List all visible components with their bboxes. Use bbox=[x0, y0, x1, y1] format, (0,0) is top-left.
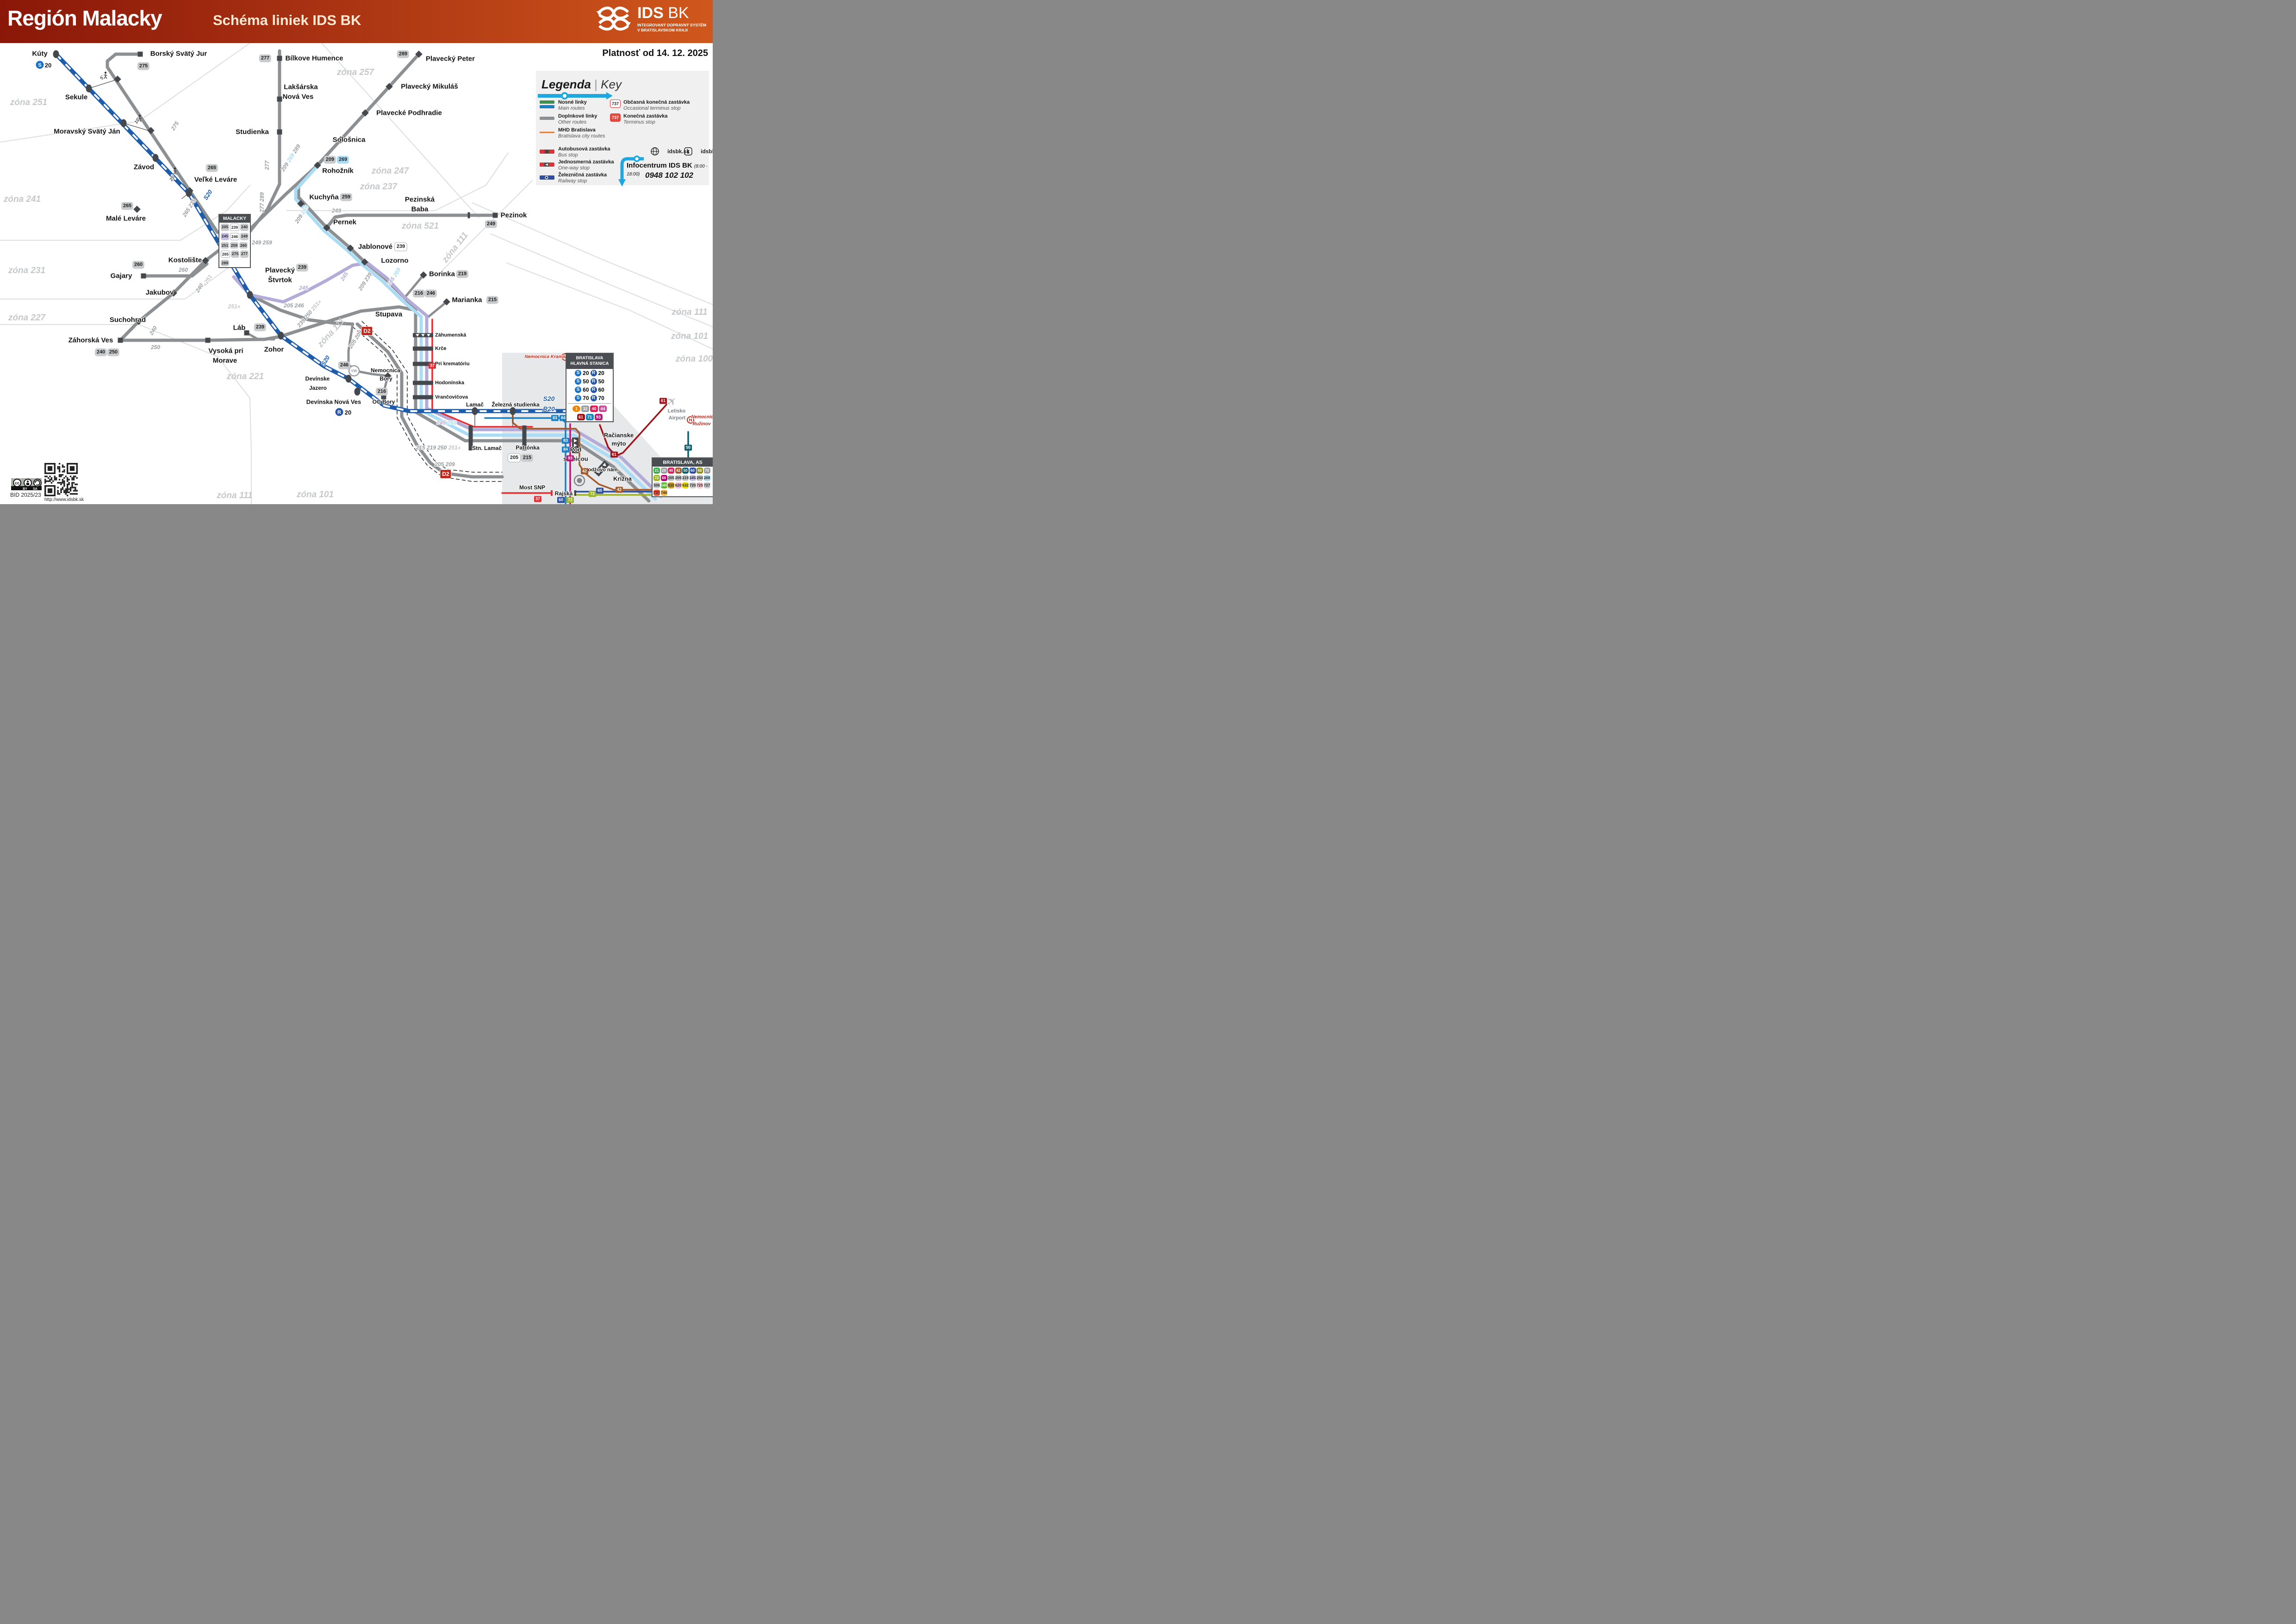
svg-text:f: f bbox=[687, 149, 690, 155]
station-label: Gajary bbox=[111, 272, 132, 280]
footer-url: http://www.idsbk.sk bbox=[44, 497, 84, 502]
route-badge: 84 bbox=[562, 447, 569, 453]
route-badge: 205 bbox=[668, 475, 674, 481]
zone-label: zóna 237 bbox=[360, 182, 397, 192]
route-badge: 265 bbox=[121, 202, 133, 210]
route-badge: 68 bbox=[697, 468, 703, 474]
station-label: Pezinok bbox=[501, 212, 527, 219]
route-badge: 70 bbox=[704, 468, 710, 474]
route-badge: 42 bbox=[675, 468, 682, 474]
legend-box: Legenda | Key Nosné linkyMain routesDopl… bbox=[536, 71, 709, 185]
route-badge: 72 bbox=[566, 497, 574, 503]
station-label: OC Bory bbox=[373, 399, 395, 405]
route-badge: 72 bbox=[653, 475, 660, 481]
terminus-badge-icon: 737 bbox=[610, 113, 621, 122]
route-badge: 216 bbox=[376, 388, 388, 396]
zone-label: zóna 111 bbox=[672, 307, 707, 318]
station-label: Pezinská bbox=[405, 196, 435, 204]
station-label: Patrónka bbox=[516, 444, 539, 451]
transit-map-poster: ✈HHVWSR zóna 251zóna 241zóna 231zóna 227… bbox=[0, 0, 713, 504]
route-badge: 205 bbox=[221, 224, 229, 231]
station-label: Pernek bbox=[333, 219, 356, 226]
mhd-icon bbox=[540, 127, 555, 137]
route-number-label: 277 bbox=[264, 161, 270, 170]
infocenter-phone: 0948 102 102 bbox=[645, 171, 693, 180]
route-badge: 289 bbox=[221, 260, 229, 266]
route-badge: 219 bbox=[682, 475, 689, 481]
route-badge: 260 bbox=[132, 261, 144, 269]
route-badge: 50 bbox=[682, 468, 689, 474]
route-number-label: 209 269 bbox=[293, 204, 310, 225]
route-badge: 239 bbox=[254, 324, 266, 331]
station-label: Plavecký Mikuláš bbox=[401, 83, 458, 91]
page-title: Región Malacky bbox=[7, 6, 162, 31]
station-label: Marianka bbox=[452, 296, 482, 304]
station-label: Láb bbox=[233, 324, 246, 332]
station-label: Vysoká pri bbox=[208, 347, 243, 355]
page-subtitle: Schéma liniek IDS BK bbox=[213, 12, 361, 29]
route-badge: 61 bbox=[577, 414, 585, 420]
idsbk-logo: IDS BK INTEGROVANÝ DOPRAVNÝ SYSTÉMV BRAT… bbox=[596, 5, 706, 33]
zone-label: zóna 101 bbox=[671, 331, 708, 342]
station-label: Stupava bbox=[375, 311, 402, 319]
zone-label: zóna 231 bbox=[8, 266, 45, 276]
legend-title: Legenda | Key bbox=[541, 77, 622, 92]
station-label: Nemocnica bbox=[371, 367, 400, 374]
station-label: Plavecké Podhradie bbox=[376, 109, 442, 117]
route-badge: 83 bbox=[551, 415, 559, 421]
route-badge: 209 bbox=[675, 475, 682, 481]
route-badge: 61 bbox=[660, 398, 667, 404]
legend-link-facebook: fidsbk.sk bbox=[683, 146, 713, 156]
route-number-label: 209 239 bbox=[357, 271, 373, 292]
route-badge: 277 bbox=[259, 55, 271, 62]
route-badge: 250 bbox=[697, 475, 703, 481]
station-label: Záhumenská bbox=[435, 332, 466, 338]
station-label: Stn. Lamač bbox=[472, 445, 502, 451]
rail-line-letter-icon: R bbox=[591, 387, 597, 393]
route-badge: D2 bbox=[361, 326, 373, 336]
station-label: Pri krematóriu bbox=[435, 361, 470, 367]
zone-label: zóna 257 bbox=[337, 68, 374, 78]
logo-name: IDS BK bbox=[637, 5, 706, 21]
route-number-label: «251 bbox=[201, 274, 213, 287]
station-label: Most SNP bbox=[519, 484, 545, 491]
zone-label: zóna 111 bbox=[440, 231, 470, 265]
station-label: Krče bbox=[435, 346, 446, 351]
route-badge: 269 bbox=[337, 156, 349, 164]
station-label: Kúty bbox=[32, 50, 47, 58]
route-badge: 620 bbox=[675, 482, 682, 488]
station-label: Rohožník bbox=[322, 167, 354, 175]
route-badge: 289 bbox=[397, 50, 409, 58]
route-badge: 239 bbox=[296, 264, 308, 272]
route-badge: 240 bbox=[240, 224, 249, 231]
station-label: Malé Leváre bbox=[106, 215, 146, 223]
route-badge: 265 bbox=[221, 250, 230, 258]
zone-label: zóna 100 bbox=[676, 354, 713, 364]
other-icon bbox=[540, 113, 555, 124]
terminal-box-title: MALACKY bbox=[219, 215, 250, 223]
route-badge: 216 bbox=[413, 290, 425, 298]
malacky-terminal-box: MALACKY205239240245246249251259260265275… bbox=[218, 214, 251, 268]
rail-line-letter-icon: R bbox=[591, 395, 597, 401]
rail-line-row: S70R70 bbox=[566, 394, 613, 402]
bratislava-as-box: BRATISLAVA, AS21254042506068707288205209… bbox=[652, 457, 713, 497]
station-label: 20 bbox=[345, 409, 351, 416]
station-label: Železná studienka bbox=[492, 401, 539, 408]
station-label: Závod bbox=[134, 163, 154, 171]
route-number-label: 245 bbox=[299, 285, 308, 291]
station-label: Lakšárska bbox=[284, 83, 317, 91]
route-badge: 60 bbox=[596, 488, 604, 494]
route-badge: 25 bbox=[661, 468, 667, 474]
route-number-label: 249 bbox=[332, 207, 341, 214]
route-badge: 249 bbox=[485, 220, 497, 228]
station-label: Studienka bbox=[236, 128, 269, 136]
route-badge: 93 bbox=[595, 414, 603, 420]
main-icon bbox=[540, 100, 555, 110]
station-label: 20 bbox=[45, 62, 51, 69]
route-badge: 88 bbox=[661, 475, 667, 481]
station-label: Nemocnica Kramáre bbox=[525, 355, 570, 360]
route-number-label: 245 269 bbox=[436, 419, 456, 426]
station-label: Nemocnica bbox=[691, 415, 713, 420]
route-badge: 1 bbox=[572, 406, 580, 412]
route-badge: 249 bbox=[240, 233, 249, 240]
route-badge: 83 bbox=[562, 438, 569, 444]
station-label: mýto bbox=[611, 440, 626, 447]
terminus-badge-icon: 737 bbox=[610, 100, 621, 108]
route-badge: 245 bbox=[690, 475, 696, 481]
route-badge: 240 bbox=[95, 349, 107, 356]
station-label: Lamač bbox=[466, 401, 484, 408]
route-number-label: S20 bbox=[543, 395, 555, 402]
rail-icon bbox=[540, 172, 555, 182]
station-label: Jakubov bbox=[146, 289, 174, 297]
route-badge: 727 bbox=[704, 482, 710, 488]
route-badge: 720 bbox=[690, 482, 696, 488]
route-number-label: 25' bbox=[169, 174, 177, 182]
zone-label: zóna 221 bbox=[227, 372, 264, 382]
station-label: Kostolište bbox=[168, 256, 202, 264]
qr-code bbox=[44, 463, 78, 496]
facebook-icon: f bbox=[683, 146, 699, 156]
route-badge: 259 bbox=[340, 194, 352, 201]
route-badge: 259 bbox=[230, 242, 238, 249]
zone-label: zóna 251 bbox=[10, 98, 47, 108]
route-badge: 610 bbox=[668, 482, 674, 488]
station-label: Kuchyňa bbox=[309, 194, 338, 201]
route-number-label: S20 bbox=[202, 188, 213, 201]
route-badge: 72 bbox=[589, 491, 596, 497]
rail-line-letter-icon: R bbox=[591, 370, 597, 376]
route-badge: 239 bbox=[394, 243, 407, 251]
route-number-label: 265 275 bbox=[181, 198, 197, 218]
rail-line-letter-icon: S bbox=[575, 387, 581, 393]
station-label: Borský Svätý Jur bbox=[150, 50, 207, 58]
route-number-label: 260 bbox=[179, 267, 188, 273]
legend-item: Autobusová zastávkaBus stop bbox=[540, 146, 610, 158]
route-badge: D2 bbox=[440, 469, 451, 479]
route-badge: 251 bbox=[221, 242, 229, 249]
station-label: Pod bbox=[570, 446, 582, 453]
route-badge: 740 bbox=[661, 490, 667, 496]
station-label: Baba bbox=[411, 206, 429, 213]
route-number-label: 205 209 bbox=[435, 461, 454, 468]
route-badge: 71 bbox=[586, 414, 594, 420]
legend-item: 737Občasná konečná zastávkaOccasional te… bbox=[610, 100, 690, 112]
route-number-label: 205 246 bbox=[284, 302, 304, 309]
route-badge: 60 bbox=[557, 497, 565, 503]
zone-label: zóna 111 bbox=[217, 491, 252, 501]
station-label: Hodžovo nám. bbox=[584, 467, 619, 473]
header: Región Malacky Schéma liniek IDS BK IDS … bbox=[0, 0, 713, 43]
validity-date: Platnosť od 14. 12. 2025 bbox=[602, 48, 708, 59]
rail-line-row: S20R20 bbox=[566, 369, 613, 377]
legend-arrow-icon bbox=[538, 91, 616, 100]
route-badge: 275 bbox=[137, 62, 149, 70]
bid-number: BID 2025/23 bbox=[10, 492, 41, 498]
rail-line-letter-icon: S bbox=[575, 395, 581, 401]
route-number-label: 245 269 bbox=[386, 267, 402, 287]
route-badge: 93 bbox=[566, 456, 574, 462]
legend-item: 737Konečná zastávkaTerminus stop bbox=[610, 113, 667, 125]
zone-label: zóna 241 bbox=[4, 194, 41, 205]
station-label: Plavecký Peter bbox=[426, 55, 475, 63]
route-badge: 737 bbox=[653, 490, 660, 496]
route-badge: 246 bbox=[338, 362, 350, 369]
route-number-label: 10' bbox=[134, 117, 142, 125]
svg-text:BY: BY bbox=[23, 487, 27, 490]
route-badge: 265 bbox=[206, 164, 218, 172]
route-badge: 37 bbox=[534, 496, 541, 502]
bus-icon bbox=[540, 146, 555, 156]
oneway-icon bbox=[540, 159, 555, 169]
station-label: Ružinov bbox=[693, 422, 711, 427]
terminal-box-title: BRATISLAVA, AS bbox=[653, 458, 713, 467]
route-badge: 632 bbox=[682, 482, 689, 488]
route-badge: 250 bbox=[107, 349, 119, 356]
idsbk-logo-icon bbox=[596, 5, 632, 33]
rail-line-letter-icon: S bbox=[575, 370, 581, 376]
route-badge: 246 bbox=[230, 233, 239, 240]
station-label: Plavecký bbox=[265, 267, 295, 275]
route-badge: 246 bbox=[425, 290, 437, 298]
route-badge: 60 bbox=[690, 468, 696, 474]
station-label: Sološnica bbox=[333, 136, 366, 144]
route-badge: 277 bbox=[240, 250, 249, 258]
station-label: Veľké Leváre bbox=[194, 176, 237, 184]
rail-line-row: S60R60 bbox=[566, 386, 613, 394]
station-label: Krížna bbox=[613, 475, 632, 482]
station-label: Devínske bbox=[305, 375, 330, 382]
cc-license-icon: cc BY SA bbox=[11, 478, 42, 490]
station-label: Suchohrad bbox=[110, 316, 146, 324]
legend-item: Jednosmerná zastávkaOne-way stop bbox=[540, 159, 614, 171]
legend-item: MHD BratislavaBratislava city routes bbox=[540, 127, 605, 139]
route-badge: 32 bbox=[581, 406, 589, 412]
station-label: Nová Ves bbox=[283, 93, 314, 101]
legend-item: Železničná zastávkaRailway stop bbox=[540, 172, 607, 184]
legend-item: Doplnkové linkyOther routes bbox=[540, 113, 597, 125]
route-number-label: 215 219 250 251» bbox=[416, 444, 461, 451]
route-badge: 725 bbox=[697, 482, 703, 488]
route-badge: 40 bbox=[590, 406, 598, 412]
route-number-label: S20 bbox=[319, 354, 331, 367]
zone-label: zóna 521 bbox=[402, 221, 439, 231]
route-badge: 50 bbox=[684, 445, 692, 451]
station-label: Moravský Svätý Ján bbox=[54, 128, 120, 136]
zone-label: zóna 247 bbox=[372, 166, 409, 176]
route-badge: 61 bbox=[610, 452, 618, 458]
station-label: Bory bbox=[380, 375, 392, 382]
terminal-box-title: BRATISLAVAHLAVNÁ STANICA bbox=[566, 354, 613, 369]
route-number-label: R20 bbox=[543, 405, 555, 412]
route-badge: 215 bbox=[521, 454, 533, 462]
station-label: Morave bbox=[213, 357, 237, 365]
logo-caption: INTEGROVANÝ DOPRAVNÝ SYSTÉMV BRATISLAVSK… bbox=[637, 23, 706, 32]
svg-text:cc: cc bbox=[15, 481, 19, 486]
route-badge: 44 bbox=[599, 406, 607, 412]
station-label: Airport bbox=[669, 415, 686, 421]
station-label: Bílkove Humence bbox=[285, 55, 343, 62]
route-badge: 269 bbox=[704, 475, 710, 481]
route-number-label: 209 269 289 bbox=[280, 143, 302, 173]
route-badge: 21 bbox=[653, 468, 660, 474]
svg-text:SA: SA bbox=[33, 487, 37, 490]
route-number-label: 249 259 bbox=[252, 239, 272, 246]
rail-line-letter-icon: R bbox=[591, 378, 597, 385]
route-badge: 540 bbox=[661, 482, 667, 488]
station-label: Vrančovičova bbox=[435, 394, 468, 400]
route-badge: 215 bbox=[486, 296, 498, 304]
rail-line-row: S50R50 bbox=[566, 377, 613, 386]
station-label: Štvrtok bbox=[268, 276, 292, 284]
route-badge: 275 bbox=[231, 250, 239, 258]
route-badge: 219 bbox=[456, 270, 468, 278]
station-label: Letisko bbox=[668, 408, 686, 414]
zone-label: zóna 111 bbox=[316, 316, 347, 350]
station-label: Rajská bbox=[555, 490, 573, 497]
route-badge: 42 bbox=[581, 468, 588, 475]
route-badge: 209 bbox=[324, 156, 336, 164]
zone-label: zóna 227 bbox=[8, 313, 45, 323]
route-number-label: 250 bbox=[151, 344, 160, 350]
zone-label: zóna 101 bbox=[297, 490, 334, 500]
rail-line-letter-icon: S bbox=[575, 378, 581, 385]
station-label: Jablonové bbox=[358, 243, 392, 251]
route-badge: 205 bbox=[508, 454, 521, 462]
route-number-label: 5' bbox=[99, 75, 106, 81]
route-badge: 37 bbox=[429, 363, 436, 369]
route-badge: 506 bbox=[653, 482, 660, 488]
station-label: Sekule bbox=[65, 94, 87, 101]
route-number-label: 251» bbox=[228, 303, 241, 310]
station-label: Jazero bbox=[309, 385, 327, 391]
route-number-label: 245 bbox=[339, 271, 350, 282]
route-badge: 40 bbox=[668, 468, 674, 474]
route-number-label: 240 bbox=[148, 325, 159, 336]
station-label: Devínska Nová Ves bbox=[306, 399, 361, 406]
station-label: Lozorno bbox=[381, 257, 408, 265]
station-label: Záhorská Ves bbox=[68, 337, 113, 344]
station-label: Hodonínska bbox=[435, 380, 464, 386]
route-badge: 260 bbox=[239, 242, 248, 249]
station-label: Račianske bbox=[604, 432, 634, 439]
route-badge: 42 bbox=[616, 487, 623, 493]
route-badge: 239 bbox=[230, 224, 239, 231]
station-label: Zohor bbox=[264, 346, 284, 354]
hlavna-stanica-box: BRATISLAVAHLAVNÁ STANICAS20R20S50R50S60R… bbox=[566, 353, 614, 422]
route-number-label: 275 bbox=[170, 120, 180, 131]
legend-item: Nosné linkyMain routes bbox=[540, 100, 587, 112]
route-badge: 245 bbox=[221, 233, 229, 240]
station-label: Borinka bbox=[429, 270, 455, 278]
globe-icon bbox=[650, 146, 666, 156]
route-number-label: 277 289 bbox=[259, 192, 265, 212]
